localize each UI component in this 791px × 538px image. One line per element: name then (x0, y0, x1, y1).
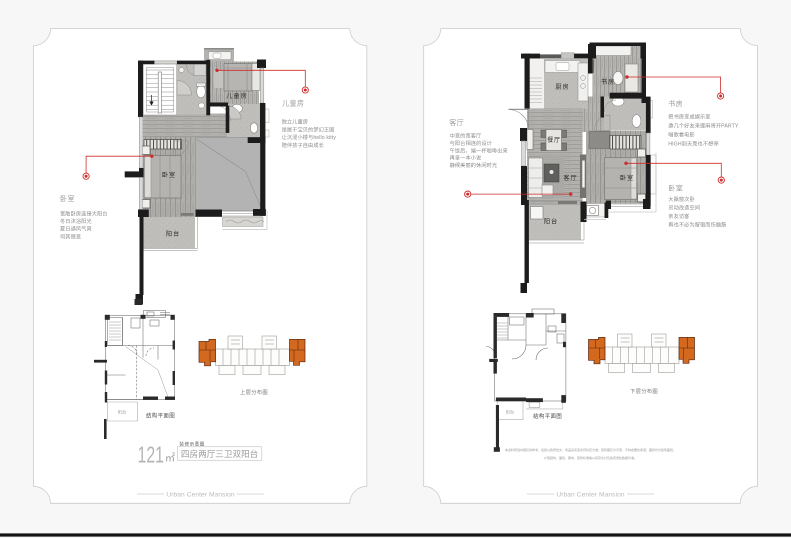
svg-text:本资料所载内容仅供参考，最终以政府批文、商品房买卖合同约定为: 本资料所载内容仅供参考，最终以政府批文、商品房买卖合同约定为准；装修图仅为示意，… (505, 447, 676, 452)
svg-text:卧室: 卧室 (668, 184, 683, 193)
svg-text:静候美丽的休闲时光: 静候美丽的休闲时光 (450, 161, 498, 169)
svg-text:客厅: 客厅 (449, 118, 464, 127)
svg-text:何其惬意: 何其惬意 (60, 232, 81, 240)
svg-text:夏日通风气爽: 夏日通风气爽 (60, 225, 92, 233)
svg-text:午饭后，端一杯咖啡出来: 午饭后，端一杯咖啡出来 (450, 146, 509, 154)
svg-text:灵动改造空间: 灵动改造空间 (668, 203, 700, 211)
svg-text:卧室: 卧室 (162, 171, 176, 179)
svg-text:亲友访客: 亲友访客 (668, 212, 689, 220)
svg-text:让沉浸小楼与hello kitty: 让沉浸小楼与hello kitty (282, 133, 337, 141)
svg-text:中意的宽客厅: 中意的宽客厅 (450, 132, 482, 140)
svg-text:客厅: 客厅 (563, 174, 577, 182)
svg-text:是属于宝贝的梦幻王国: 是属于宝贝的梦幻王国 (282, 125, 335, 133)
svg-text:陪伴孩子自由成长: 陪伴孩子自由成长 (282, 141, 325, 149)
svg-text:餐厅: 餐厅 (547, 136, 561, 144)
svg-text:㎡: ㎡ (165, 453, 175, 465)
svg-text:儿童房: 儿童房 (226, 92, 248, 100)
svg-text:唱歌看电影: 唱歌看电影 (668, 130, 694, 138)
svg-text:121: 121 (138, 442, 165, 468)
svg-text:Urban Center Mansion: Urban Center Mansion (166, 492, 235, 499)
svg-text:独立儿童房: 独立儿童房 (282, 118, 308, 126)
svg-text:卧室: 卧室 (620, 174, 634, 182)
svg-text:宽敞卧房连接大阳台: 宽敞卧房连接大阳台 (60, 209, 108, 217)
svg-text:再拿一本小说: 再拿一本小说 (450, 154, 482, 162)
svg-text:厨房: 厨房 (555, 83, 569, 91)
svg-text:Urban Center Mansion: Urban Center Mansion (556, 492, 625, 499)
svg-text:大飘窗次卧: 大飘窗次卧 (668, 195, 694, 203)
svg-text:阳台: 阳台 (544, 218, 558, 226)
svg-text:结构平面图: 结构平面图 (146, 412, 175, 420)
svg-text:书房: 书房 (601, 78, 615, 86)
svg-text:卧室: 卧室 (60, 194, 75, 203)
svg-text:结构平面图: 结构平面图 (533, 412, 562, 420)
svg-text:再也不必为留宿而伤脑筋: 再也不必为留宿而伤脑筋 (668, 220, 726, 228)
svg-text:儿童房: 儿童房 (282, 99, 305, 108)
svg-text:阳台: 阳台 (166, 230, 180, 238)
svg-text:户型结构、面积、朝向、装修标准等以实际交付及政府测绘数据为准: 户型结构、面积、朝向、装修标准等以实际交付及政府测绘数据为准。 (544, 455, 637, 460)
svg-text:上层分布图: 上层分布图 (240, 388, 268, 396)
svg-text:四房两厅三卫双阳台: 四房两厅三卫双阳台 (181, 448, 258, 459)
svg-text:书房: 书房 (668, 99, 683, 108)
svg-text:邀几个好友来搓麻将开PARTY: 邀几个好友来搓麻将开PARTY (668, 122, 739, 130)
svg-text:阳台: 阳台 (118, 409, 126, 416)
svg-text:下层分布图: 下层分布图 (630, 387, 658, 395)
svg-text:HIGH到天亮也不想停: HIGH到天亮也不想停 (668, 139, 718, 147)
svg-text:把书房变成娱乐室: 把书房变成娱乐室 (668, 113, 710, 121)
svg-text:与阳台相连的设计: 与阳台相连的设计 (450, 139, 492, 147)
svg-text:冬日沐浴阳光: 冬日沐浴阳光 (60, 217, 92, 225)
svg-text:阳台: 阳台 (506, 409, 514, 416)
